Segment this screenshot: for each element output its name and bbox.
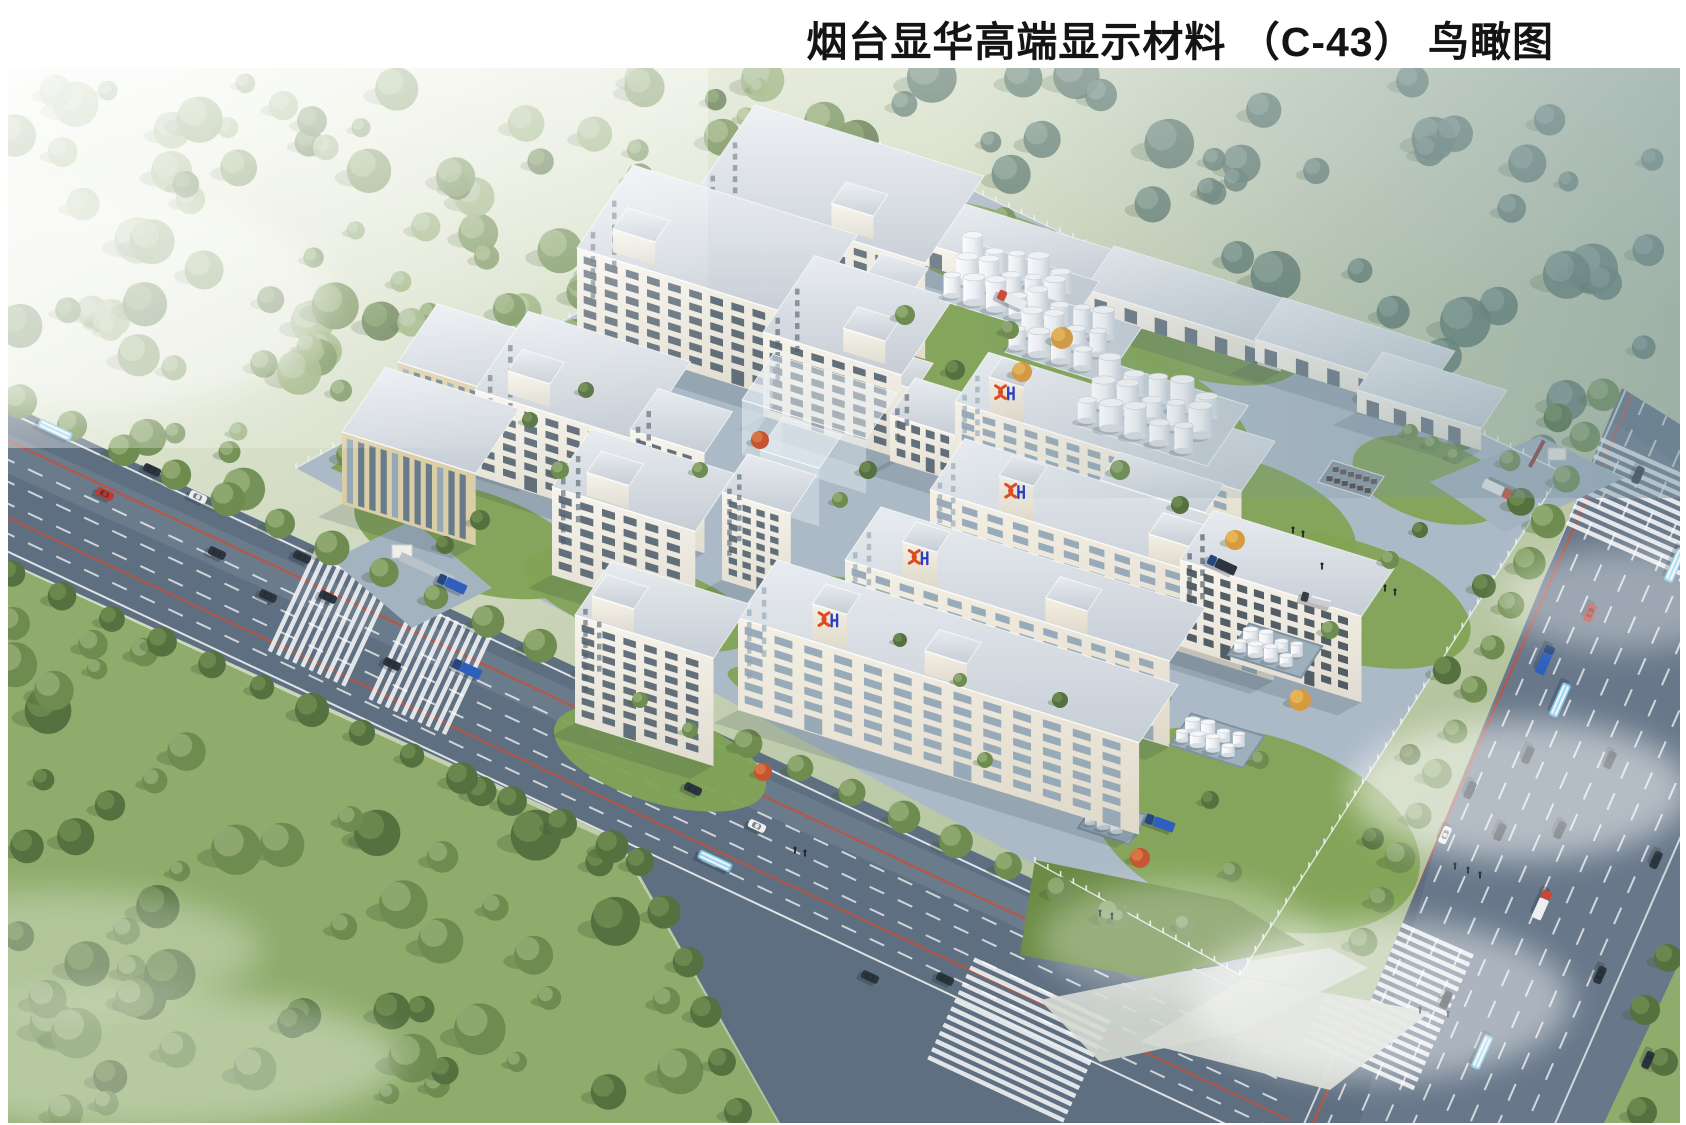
teal-haze — [950, 68, 1680, 498]
page-title: 烟台显华高端显示材料 （C-43） 鸟瞰图 — [806, 8, 1554, 68]
rendering-board: 烟台显华高端显示材料 （C-43） 鸟瞰图 — [0, 0, 1686, 1125]
aerial-rendering — [0, 0, 1686, 1125]
scene-root — [0, 53, 1686, 1125]
smoke — [1040, 880, 1320, 1000]
tree — [1, 830, 44, 864]
smoke — [1350, 720, 1686, 860]
